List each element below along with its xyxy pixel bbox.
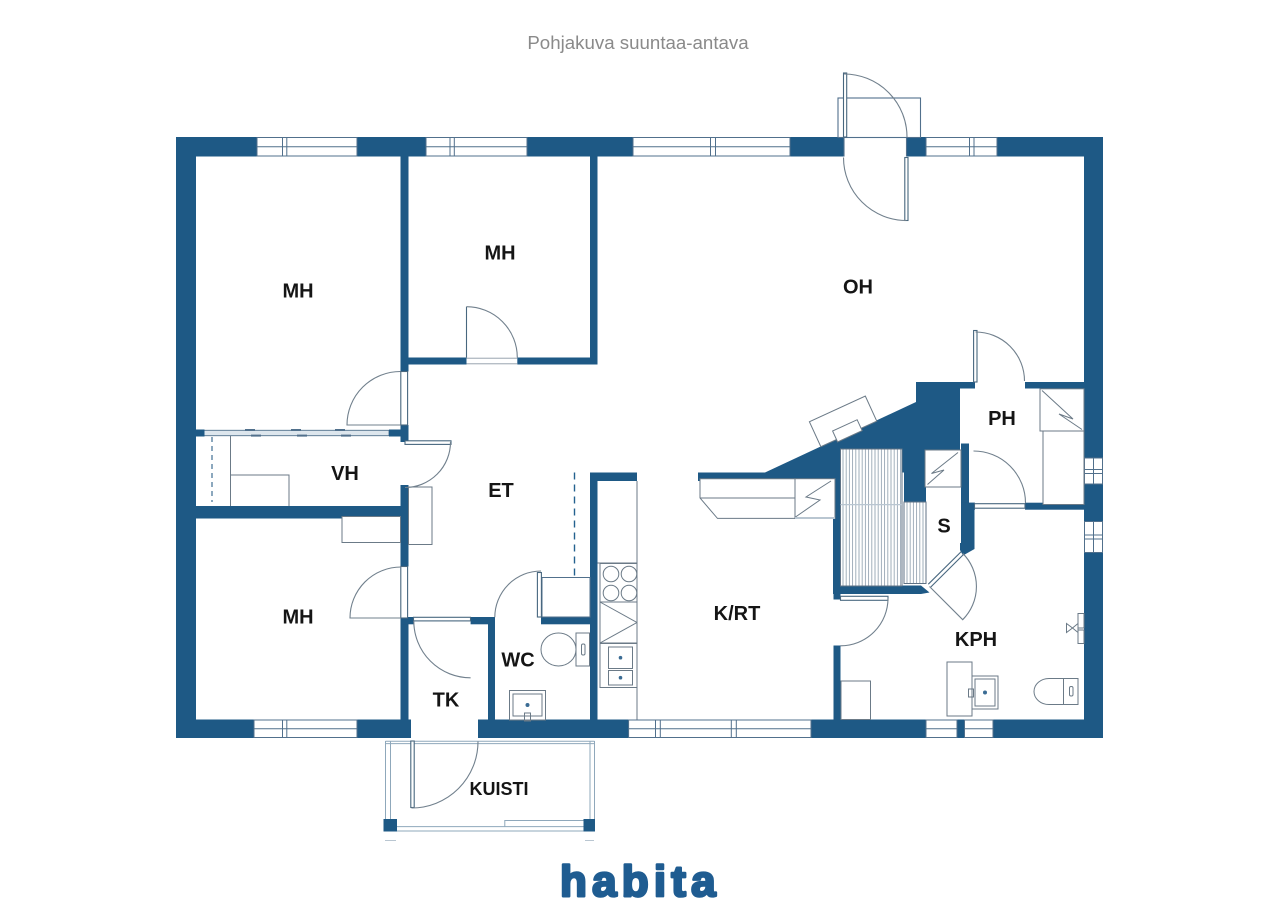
svg-text:KUISTI: KUISTI — [469, 779, 528, 799]
svg-text:OH: OH — [843, 277, 873, 299]
svg-text:VH: VH — [331, 463, 359, 485]
svg-text:TK: TK — [433, 690, 460, 712]
svg-text:K/RT: K/RT — [714, 603, 761, 625]
svg-text:MH: MH — [282, 281, 313, 303]
svg-text:habita: habita — [560, 857, 721, 905]
svg-text:ET: ET — [488, 480, 514, 502]
svg-text:S: S — [937, 516, 950, 538]
svg-text:MH: MH — [282, 607, 313, 629]
svg-text:PH: PH — [988, 408, 1016, 430]
svg-text:MH: MH — [484, 243, 515, 265]
svg-text:Pohjakuva suuntaa-antava: Pohjakuva suuntaa-antava — [527, 32, 749, 53]
svg-text:KPH: KPH — [955, 629, 997, 651]
svg-text:WC: WC — [501, 650, 534, 672]
